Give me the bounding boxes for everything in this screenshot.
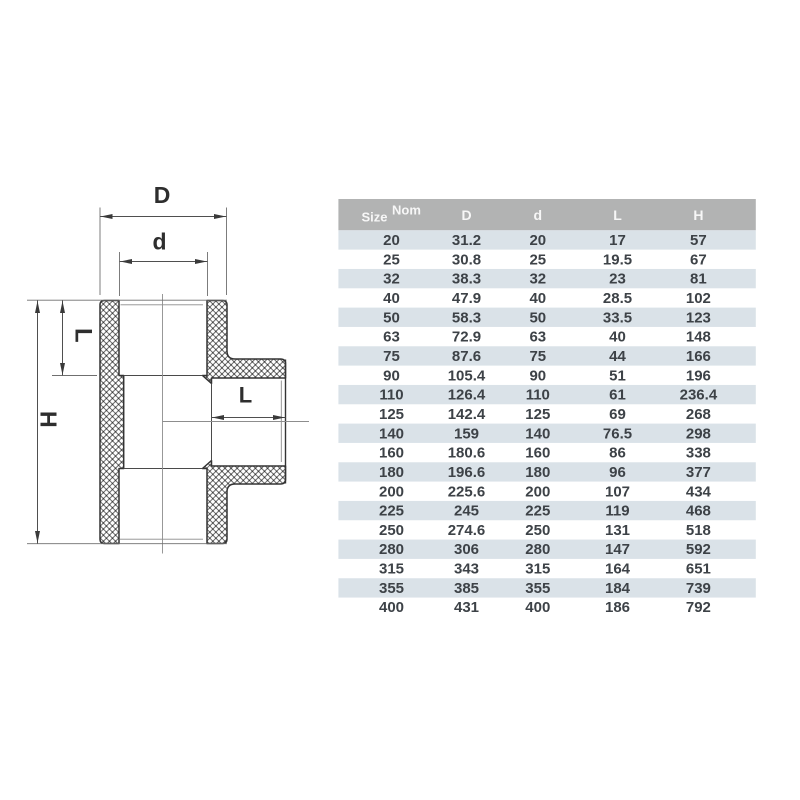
svg-text:28.5: 28.5 [603, 290, 632, 307]
svg-text:87.6: 87.6 [452, 348, 481, 365]
svg-text:338: 338 [686, 445, 711, 462]
svg-text:142.4: 142.4 [448, 406, 486, 423]
svg-text:280: 280 [525, 541, 550, 558]
svg-text:225: 225 [379, 503, 404, 520]
svg-text:315: 315 [525, 561, 550, 578]
svg-text:400: 400 [379, 599, 404, 616]
svg-text:63: 63 [383, 329, 400, 346]
svg-text:58.3: 58.3 [452, 309, 481, 326]
svg-text:245: 245 [454, 503, 479, 520]
svg-text:76.5: 76.5 [603, 425, 632, 442]
svg-text:20: 20 [383, 232, 400, 249]
svg-text:50: 50 [383, 309, 400, 326]
svg-text:196.6: 196.6 [448, 464, 486, 481]
svg-text:57: 57 [690, 232, 707, 249]
svg-text:400: 400 [525, 599, 550, 616]
svg-text:250: 250 [525, 522, 550, 539]
svg-text:225: 225 [525, 503, 550, 520]
svg-text:186: 186 [605, 599, 630, 616]
svg-text:67: 67 [690, 251, 707, 268]
svg-text:d: d [152, 229, 166, 255]
svg-text:140: 140 [525, 425, 550, 442]
svg-text:196: 196 [686, 367, 711, 384]
svg-text:180.6: 180.6 [448, 445, 486, 462]
svg-text:H: H [693, 207, 703, 223]
svg-text:19.5: 19.5 [603, 251, 632, 268]
svg-text:792: 792 [686, 599, 711, 616]
svg-text:Nom: Nom [392, 203, 421, 218]
svg-text:D: D [154, 182, 171, 208]
svg-text:355: 355 [379, 580, 404, 597]
svg-text:61: 61 [609, 387, 626, 404]
svg-text:164: 164 [605, 561, 631, 578]
svg-text:33.5: 33.5 [603, 309, 632, 326]
svg-text:90: 90 [529, 367, 546, 384]
svg-text:81: 81 [690, 271, 707, 288]
svg-text:200: 200 [379, 483, 404, 500]
svg-text:355: 355 [525, 580, 550, 597]
svg-text:160: 160 [525, 445, 550, 462]
svg-text:280: 280 [379, 541, 404, 558]
svg-text:H: H [36, 411, 62, 428]
svg-text:166: 166 [686, 348, 711, 365]
svg-text:23: 23 [609, 271, 626, 288]
svg-text:86: 86 [609, 445, 626, 462]
svg-text:47.9: 47.9 [452, 290, 481, 307]
svg-text:225.6: 225.6 [448, 483, 486, 500]
svg-text:30.8: 30.8 [452, 251, 481, 268]
svg-text:D: D [461, 207, 471, 223]
svg-text:32: 32 [383, 271, 400, 288]
svg-text:L: L [613, 207, 622, 223]
svg-text:125: 125 [379, 406, 404, 423]
svg-text:96: 96 [609, 464, 626, 481]
svg-text:17: 17 [609, 232, 626, 249]
svg-text:L: L [239, 383, 252, 408]
svg-text:739: 739 [686, 580, 711, 597]
svg-text:Size: Size [361, 210, 387, 225]
svg-text:32: 32 [529, 271, 546, 288]
svg-text:123: 123 [686, 309, 711, 326]
svg-text:25: 25 [383, 251, 400, 268]
svg-text:250: 250 [379, 522, 404, 539]
svg-text:40: 40 [529, 290, 546, 307]
svg-text:50: 50 [529, 309, 546, 326]
svg-text:274.6: 274.6 [448, 522, 486, 539]
svg-text:147: 147 [605, 541, 630, 558]
svg-text:31.2: 31.2 [452, 232, 481, 249]
svg-text:592: 592 [686, 541, 711, 558]
svg-text:126.4: 126.4 [448, 387, 486, 404]
svg-text:69: 69 [609, 406, 626, 423]
svg-text:518: 518 [686, 522, 711, 539]
svg-text:200: 200 [525, 483, 550, 500]
svg-text:268: 268 [686, 406, 711, 423]
svg-text:125: 125 [525, 406, 550, 423]
svg-text:d: d [534, 207, 543, 223]
svg-text:90: 90 [383, 367, 400, 384]
svg-text:107: 107 [605, 483, 630, 500]
svg-text:180: 180 [525, 464, 550, 481]
svg-text:140: 140 [379, 425, 404, 442]
svg-text:20: 20 [529, 232, 546, 249]
svg-text:651: 651 [686, 561, 711, 578]
svg-text:468: 468 [686, 503, 711, 520]
svg-text:298: 298 [686, 425, 711, 442]
svg-text:315: 315 [379, 561, 404, 578]
svg-text:343: 343 [454, 561, 479, 578]
svg-text:110: 110 [526, 387, 550, 404]
svg-text:236.4: 236.4 [680, 387, 718, 404]
svg-text:44: 44 [609, 348, 626, 365]
svg-text:75: 75 [383, 348, 400, 365]
svg-text:119: 119 [605, 503, 629, 520]
svg-text:159: 159 [454, 425, 479, 442]
svg-text:40: 40 [383, 290, 400, 307]
svg-text:75: 75 [529, 348, 546, 365]
svg-text:51: 51 [609, 367, 626, 384]
svg-text:105.4: 105.4 [448, 367, 486, 384]
svg-text:102: 102 [686, 290, 711, 307]
svg-text:377: 377 [686, 464, 711, 481]
svg-text:131: 131 [605, 522, 630, 539]
svg-text:434: 434 [686, 483, 712, 500]
svg-text:63: 63 [529, 329, 546, 346]
svg-text:180: 180 [379, 464, 404, 481]
svg-text:306: 306 [454, 541, 479, 558]
svg-text:110: 110 [379, 387, 403, 404]
svg-text:385: 385 [454, 580, 479, 597]
svg-text:148: 148 [686, 329, 711, 346]
svg-text:160: 160 [379, 445, 404, 462]
svg-text:40: 40 [609, 329, 626, 346]
svg-text:38.3: 38.3 [452, 271, 481, 288]
svg-text:431: 431 [454, 599, 479, 616]
svg-text:184: 184 [605, 580, 631, 597]
svg-text:L: L [70, 328, 97, 343]
svg-text:72.9: 72.9 [452, 329, 481, 346]
svg-text:25: 25 [529, 251, 546, 268]
